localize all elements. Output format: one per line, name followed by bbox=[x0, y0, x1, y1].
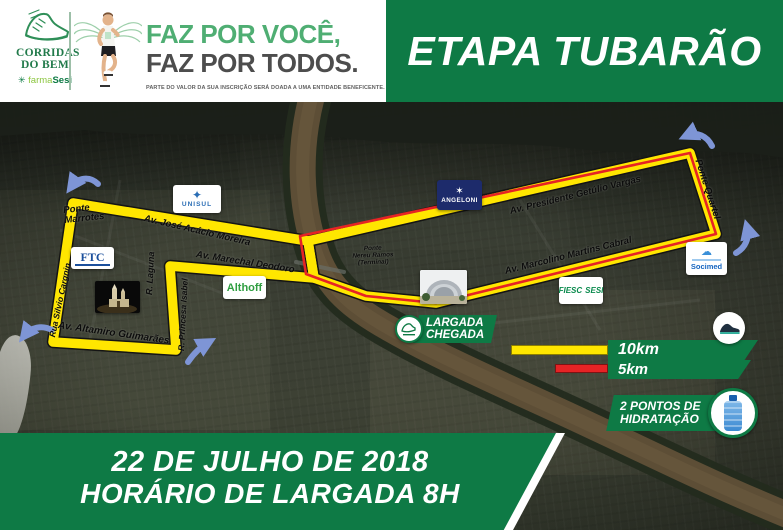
unisul-logo: ✦ UNISUL bbox=[173, 185, 221, 213]
legend-10km-color-swatch bbox=[511, 345, 608, 355]
legend-10km-banner: 10km bbox=[608, 340, 758, 360]
socimed-logo-text: Socimed bbox=[691, 262, 722, 271]
fiesc-sesi-logo: FIESC SESI bbox=[559, 277, 603, 304]
fiesc-logo-text: FIESC bbox=[559, 286, 582, 295]
running-shoe-badge bbox=[713, 312, 745, 344]
chegada-label: CHEGADA bbox=[426, 329, 484, 341]
unisul-emblem-icon: ✦ bbox=[192, 190, 202, 201]
winged-runner-image bbox=[74, 4, 142, 100]
label-ponte-nereu-ramos-terminal: Ponte Nereu Ramos (Terminal) bbox=[344, 244, 403, 267]
church-photo bbox=[95, 281, 140, 313]
terminal-illustration bbox=[420, 270, 467, 304]
sketch-shoe-icon bbox=[19, 5, 71, 43]
terminal-building-photo bbox=[420, 270, 467, 304]
angeloni-logo: ✶ ANGELONI bbox=[437, 180, 482, 210]
angeloni-logo-text: ANGELONI bbox=[441, 197, 477, 204]
church-illustration bbox=[95, 281, 140, 313]
event-date-block: 22 DE JULHO DE 2018 HORÁRIO DE LARGADA 8… bbox=[0, 447, 540, 509]
socimed-logo: ☁ Socimed bbox=[686, 242, 727, 275]
farma-text: farma bbox=[28, 75, 52, 86]
socimed-globe-icon: ☁ bbox=[701, 247, 712, 258]
ftc-logo: FTC bbox=[71, 247, 114, 269]
header-divider-line bbox=[69, 12, 71, 90]
start-finish-logo-circle bbox=[395, 315, 423, 343]
water-bottle-icon bbox=[724, 395, 742, 431]
unisul-logo-text: UNISUL bbox=[182, 201, 212, 208]
event-date: 22 DE JULHO DE 2018 bbox=[0, 447, 540, 478]
flower-icon: ✳ bbox=[18, 75, 26, 85]
start-finish-badge: LARGADA CHEGADA bbox=[413, 315, 497, 343]
start-time: HORÁRIO DE LARGADA 8H bbox=[0, 478, 540, 509]
race-poster: Ponte Marrotes Av. José Acácio Moreira A… bbox=[0, 0, 783, 530]
hydration-line2: HIDRATAÇÃO bbox=[620, 413, 700, 426]
start-finish-text: LARGADA CHEGADA bbox=[416, 317, 484, 341]
largada-label: LARGADA bbox=[426, 317, 484, 329]
label-ponte-marrotes: Ponte Marrotes bbox=[63, 202, 105, 226]
angeloni-star-icon: ✶ bbox=[455, 187, 463, 197]
althoff-logo: Althoff bbox=[223, 276, 266, 299]
runner-illustration bbox=[74, 4, 142, 100]
running-shoe-icon bbox=[716, 315, 742, 341]
althoff-logo-text: Althoff bbox=[227, 282, 262, 294]
corridas-mini-shoe-icon bbox=[399, 319, 419, 339]
logo-word-corridas: CORRIDAS bbox=[16, 48, 74, 60]
socimed-logo-line bbox=[692, 259, 721, 261]
bottle-body bbox=[724, 401, 742, 431]
header-green-panel: ETAPA TUBARÃO bbox=[386, 0, 783, 102]
event-title: ETAPA TUBARÃO bbox=[407, 28, 761, 75]
logo-word-do-bem: DO BEM bbox=[16, 60, 74, 72]
water-bottle-circle bbox=[708, 388, 758, 438]
sesi-logo-text: SESI bbox=[585, 286, 603, 295]
corridas-do-bem-logo: CORRIDAS DO BEM ✳ farmaSesi bbox=[16, 5, 74, 99]
header-white-panel: CORRIDAS DO BEM ✳ farmaSesi bbox=[0, 0, 386, 102]
mountains bbox=[0, 100, 783, 158]
legend-5km-color-swatch bbox=[555, 364, 608, 373]
farmasesi-brand: ✳ farmaSesi bbox=[16, 75, 74, 86]
ftc-logo-underline bbox=[75, 264, 109, 266]
hydration-text: 2 PONTOS DE HIDRATAÇÃO bbox=[610, 400, 700, 426]
ftc-logo-text: FTC bbox=[81, 251, 105, 263]
legend-5km-banner: 5km bbox=[608, 360, 751, 379]
